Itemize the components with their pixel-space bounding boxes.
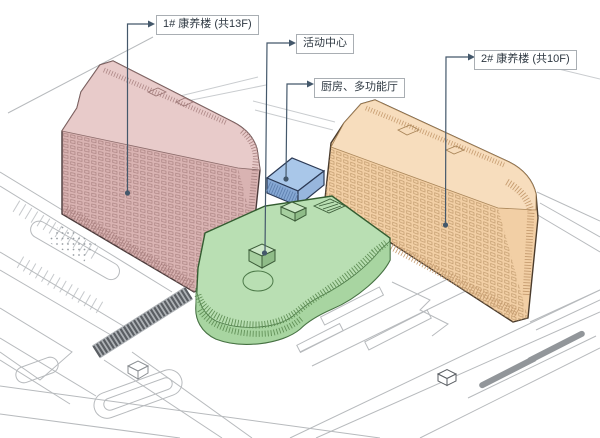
site-line [468, 336, 596, 398]
site-line [182, 85, 266, 102]
site-line [392, 282, 448, 336]
leader-dot-activity-center [262, 250, 267, 255]
leader-dot-building2 [443, 222, 448, 227]
axonometric-site-diagram: 1# 康养楼 (共13F) 活动中心 厨房、多功能厅 2# 康养楼 (共10F) [0, 0, 600, 438]
small-structure [128, 361, 148, 379]
site-line [540, 203, 600, 237]
courtyard-bar [365, 310, 431, 350]
arrowhead-icon [307, 81, 314, 88]
label-kitchen-hall: 厨房、多功能厅 [314, 78, 405, 98]
site-line [536, 214, 600, 252]
courtyard-bar [297, 324, 343, 353]
site-line [253, 101, 335, 122]
label-activity-center: 活动中心 [296, 34, 354, 54]
road-edge [0, 414, 180, 438]
site-line [176, 77, 258, 97]
site-line [0, 338, 96, 396]
road-edge [290, 290, 600, 438]
label-activity-center-text: 活动中心 [303, 37, 347, 49]
label-building2: 2# 康养楼 (共10F) [474, 50, 577, 70]
tree-band [96, 293, 189, 352]
site-line [0, 360, 70, 404]
label-building1: 1# 康养楼 (共13F) [156, 15, 259, 35]
site-line [104, 360, 222, 438]
leader-dot-building1 [125, 190, 130, 195]
arrowhead-icon [148, 21, 155, 28]
site-line [132, 352, 252, 438]
label-building1-text: 1# 康养楼 (共13F) [163, 18, 252, 30]
label-building2-text: 2# 康养楼 (共10F) [481, 53, 570, 65]
road-edge [420, 348, 600, 438]
site-line [0, 252, 130, 330]
label-kitchen-hall-text: 厨房、多功能厅 [321, 81, 398, 93]
arrowhead-icon [289, 40, 296, 47]
leader-dot-kitchen-hall [283, 176, 288, 181]
